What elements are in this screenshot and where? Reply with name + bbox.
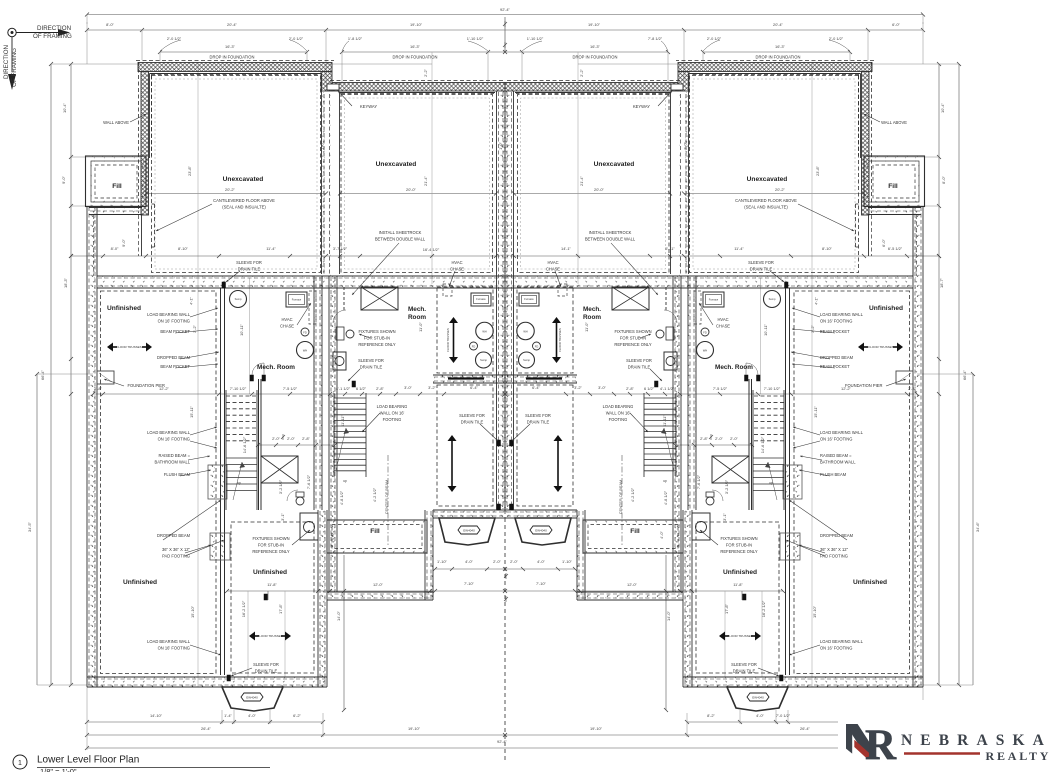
svg-text:DRAIN TILE: DRAIN TILE bbox=[461, 419, 484, 424]
svg-text:92'-4": 92'-4" bbox=[500, 7, 511, 12]
svg-text:Mech.: Mech. bbox=[583, 306, 601, 313]
svg-text:BEAM POCKET: BEAM POCKET bbox=[160, 329, 190, 334]
svg-text:ON 16' FOOTING: ON 16' FOOTING bbox=[820, 436, 852, 441]
svg-text:2'-0 1/2": 2'-0 1/2" bbox=[167, 36, 182, 41]
svg-text:FLOOR TRUSSES: FLOOR TRUSSES bbox=[727, 634, 752, 638]
svg-text:4'-8 1/2": 4'-8 1/2" bbox=[339, 490, 344, 505]
svg-text:1'-10": 1'-10" bbox=[562, 559, 573, 564]
svg-text:EW4040: EW4040 bbox=[535, 528, 547, 532]
svg-text:12'-0": 12'-0" bbox=[373, 582, 384, 587]
svg-text:KEYWAY: KEYWAY bbox=[633, 104, 650, 109]
svg-text:SLEEVE FOR: SLEEVE FOR bbox=[459, 413, 485, 418]
svg-text:26'-4": 26'-4" bbox=[201, 726, 212, 731]
svg-text:Mech. Room: Mech. Room bbox=[715, 364, 753, 371]
svg-text:Fill: Fill bbox=[112, 183, 122, 190]
svg-text:2'-0": 2'-0" bbox=[272, 436, 280, 441]
svg-text:1/8" = 1'-0": 1/8" = 1'-0" bbox=[40, 767, 77, 772]
svg-text:BETWEEN DOUBLE WALL: BETWEEN DOUBLE WALL bbox=[585, 236, 636, 241]
svg-text:12'-0": 12'-0" bbox=[627, 582, 638, 587]
svg-text:CHASE: CHASE bbox=[546, 266, 560, 271]
svg-text:16'-3": 16'-3" bbox=[225, 44, 236, 49]
svg-text:FD: FD bbox=[535, 345, 539, 349]
svg-text:Unexcavated: Unexcavated bbox=[594, 161, 635, 168]
svg-text:Fill: Fill bbox=[630, 528, 640, 535]
svg-text:FIXTURES SHOWN: FIXTURES SHOWN bbox=[252, 536, 289, 541]
svg-text:Unexcavated: Unexcavated bbox=[747, 176, 788, 183]
svg-text:1'-8 1/2": 1'-8 1/2" bbox=[348, 36, 363, 41]
svg-text:2'-0 1/2": 2'-0 1/2" bbox=[707, 36, 722, 41]
svg-text:4'-1 1/2": 4'-1 1/2" bbox=[660, 386, 675, 391]
svg-text:1'-4": 1'-4" bbox=[224, 713, 232, 718]
svg-text:14'-0": 14'-0" bbox=[666, 610, 671, 621]
svg-text:HVAC: HVAC bbox=[547, 260, 558, 265]
svg-text:7'-10": 7'-10" bbox=[536, 581, 547, 586]
svg-text:16'-3": 16'-3" bbox=[775, 44, 786, 49]
svg-text:1'-10 1/2": 1'-10 1/2" bbox=[527, 36, 544, 41]
svg-text:26'-4": 26'-4" bbox=[800, 726, 811, 731]
svg-text:FD: FD bbox=[472, 345, 476, 349]
svg-text:21'-4": 21'-4" bbox=[579, 175, 584, 186]
svg-text:WALL ABOVE: WALL ABOVE bbox=[881, 120, 907, 125]
svg-text:BEAM POCKET: BEAM POCKET bbox=[160, 364, 190, 369]
svg-text:DRAIN TILE: DRAIN TILE bbox=[733, 668, 756, 673]
svg-text:17'-8": 17'-8" bbox=[724, 603, 729, 614]
svg-text:11'-8": 11'-8" bbox=[733, 582, 743, 587]
svg-text:2'-2": 2'-2" bbox=[579, 69, 584, 77]
svg-text:WH: WH bbox=[482, 330, 486, 334]
svg-text:3'-0": 3'-0" bbox=[598, 385, 606, 390]
svg-text:DRAIN TILE: DRAIN TILE bbox=[238, 266, 261, 271]
svg-text:12'-2": 12'-2" bbox=[159, 386, 170, 391]
svg-text:up: up bbox=[769, 481, 773, 485]
svg-text:2'-0": 2'-0" bbox=[287, 436, 295, 441]
svg-text:PAD FOOTING: PAD FOOTING bbox=[162, 553, 190, 558]
svg-text:3'-2": 3'-2" bbox=[192, 325, 197, 333]
svg-text:4'-0": 4'-0" bbox=[248, 713, 256, 718]
svg-text:OF FRAMING: OF FRAMING bbox=[11, 48, 18, 87]
svg-text:DRAIN TILE: DRAIN TILE bbox=[628, 364, 651, 369]
svg-text:3'-2": 3'-2" bbox=[810, 325, 815, 333]
svg-text:LOAD BEARING WALL: LOAD BEARING WALL bbox=[147, 430, 191, 435]
svg-text:14'-0": 14'-0" bbox=[336, 610, 341, 621]
svg-text:up: up bbox=[663, 479, 667, 483]
svg-text:10'-11": 10'-11" bbox=[763, 323, 768, 335]
svg-text:Sump: Sump bbox=[523, 358, 530, 362]
svg-text:20'-4": 20'-4" bbox=[227, 22, 238, 27]
svg-text:FLUSH BEAM: FLUSH BEAM bbox=[820, 472, 847, 477]
svg-text:14'-10": 14'-10" bbox=[150, 713, 163, 718]
svg-text:FD: FD bbox=[303, 331, 307, 335]
svg-text:LOAD BEARING: LOAD BEARING bbox=[603, 404, 634, 409]
svg-text:RAISED BEAM =: RAISED BEAM = bbox=[820, 453, 852, 458]
svg-text:20'-0": 20'-0" bbox=[594, 187, 605, 192]
svg-text:2'-8": 2'-8" bbox=[908, 386, 916, 391]
svg-text:11'-0": 11'-0" bbox=[584, 322, 589, 332]
svg-text:FIXTURES SHOWN: FIXTURES SHOWN bbox=[614, 329, 651, 334]
svg-text:4'-0": 4'-0" bbox=[756, 713, 764, 718]
svg-text:CHASE: CHASE bbox=[716, 323, 730, 328]
svg-text:23'-8": 23'-8" bbox=[815, 165, 820, 176]
svg-text:6 1/2": 6 1/2" bbox=[644, 386, 655, 391]
svg-text:LOAD BEARING: LOAD BEARING bbox=[377, 404, 408, 409]
svg-text:16'-4 1/2": 16'-4 1/2" bbox=[423, 247, 440, 252]
svg-text:11'-0": 11'-0" bbox=[418, 322, 423, 332]
svg-text:7'-10": 7'-10" bbox=[464, 581, 475, 586]
svg-text:16'-3": 16'-3" bbox=[590, 44, 601, 49]
svg-text:2'-8": 2'-8" bbox=[700, 436, 708, 441]
svg-text:8'-2": 8'-2" bbox=[707, 713, 715, 718]
svg-text:RAISED BEAM =: RAISED BEAM = bbox=[158, 453, 190, 458]
svg-text:4'-2 1/2": 4'-2 1/2" bbox=[630, 487, 635, 502]
svg-text:4'-0": 4'-0" bbox=[659, 531, 664, 539]
svg-text:2'-2": 2'-2" bbox=[423, 69, 428, 77]
svg-text:FLOOR TRUSSES: FLOOR TRUSSES bbox=[116, 345, 141, 349]
svg-text:REFERENCE ONLY: REFERENCE ONLY bbox=[358, 342, 395, 347]
svg-text:9'-0": 9'-0" bbox=[121, 239, 126, 247]
svg-text:EW4040: EW4040 bbox=[246, 695, 258, 699]
svg-text:7'-10 1/2": 7'-10 1/2" bbox=[230, 386, 247, 391]
svg-text:4'-1": 4'-1" bbox=[189, 297, 194, 305]
svg-text:23'-8": 23'-8" bbox=[187, 165, 192, 176]
svg-text:11'-11": 11'-11" bbox=[340, 415, 345, 427]
svg-text:15'-11": 15'-11" bbox=[189, 405, 194, 417]
svg-text:6'-0": 6'-0" bbox=[881, 239, 886, 247]
svg-text:EW4040: EW4040 bbox=[463, 528, 475, 532]
svg-text:NEBRASKA: NEBRASKA bbox=[901, 732, 1052, 749]
svg-text:(SEAL AND INSUALTE): (SEAL AND INSUALTE) bbox=[744, 204, 788, 209]
svg-text:10'-4": 10'-4" bbox=[62, 102, 67, 113]
svg-text:Unfinished: Unfinished bbox=[853, 579, 887, 586]
svg-text:FOR STUB-IN: FOR STUB-IN bbox=[258, 542, 284, 547]
svg-text:16'-3": 16'-3" bbox=[410, 44, 421, 49]
svg-text:LOAD BEARING WALL: LOAD BEARING WALL bbox=[820, 639, 864, 644]
svg-text:ON 16' FOOTING: ON 16' FOOTING bbox=[158, 436, 190, 441]
svg-text:1'-0": 1'-0" bbox=[498, 142, 503, 150]
svg-text:2'-8": 2'-8" bbox=[302, 436, 310, 441]
svg-text:18'-7": 18'-7" bbox=[939, 277, 944, 288]
svg-text:FLUSH BEAM: FLUSH BEAM bbox=[164, 472, 191, 477]
svg-text:7'-5 1/2": 7'-5 1/2" bbox=[713, 386, 728, 391]
svg-text:LOAD BEARING WALL: LOAD BEARING WALL bbox=[820, 430, 864, 435]
svg-text:CHASE: CHASE bbox=[450, 266, 464, 271]
svg-text:FLOOR TRUSSES: FLOOR TRUSSES bbox=[257, 634, 282, 638]
svg-text:INSTALL SHEETROCK: INSTALL SHEETROCK bbox=[589, 230, 632, 235]
svg-text:CENTER OF BEAM: CENTER OF BEAM bbox=[384, 480, 389, 515]
svg-text:Sump: Sump bbox=[235, 297, 242, 301]
svg-text:FLOOR TRUSSES: FLOOR TRUSSES bbox=[558, 328, 562, 352]
svg-text:8'-10": 8'-10" bbox=[822, 246, 833, 251]
svg-text:WH: WH bbox=[703, 349, 707, 353]
svg-text:OF FRAMING: OF FRAMING bbox=[33, 33, 72, 40]
svg-text:WALL ON 16': WALL ON 16' bbox=[380, 410, 405, 415]
svg-text:PAD FOOTING: PAD FOOTING bbox=[820, 553, 848, 558]
svg-text:20'-2": 20'-2" bbox=[225, 187, 236, 192]
svg-text:SLEEVE FOR: SLEEVE FOR bbox=[525, 413, 551, 418]
svg-text:FOOTING: FOOTING bbox=[609, 417, 628, 422]
svg-text:4'-0": 4'-0" bbox=[537, 559, 545, 564]
svg-text:ON 16' FOOTING: ON 16' FOOTING bbox=[820, 318, 852, 323]
svg-text:SLEEVE FOR: SLEEVE FOR bbox=[731, 662, 757, 667]
svg-text:7'-0 1/2": 7'-0 1/2" bbox=[776, 713, 791, 718]
svg-text:CANTILEVERED FLOOR ABOVE: CANTILEVERED FLOOR ABOVE bbox=[213, 198, 275, 203]
svg-text:SLEEVE FOR: SLEEVE FOR bbox=[236, 260, 262, 265]
svg-text:1'-0": 1'-0" bbox=[683, 142, 688, 150]
svg-text:2'-0": 2'-0" bbox=[493, 559, 501, 564]
svg-text:BATHROOM WALL: BATHROOM WALL bbox=[820, 459, 856, 464]
svg-text:FOR STUB-IN: FOR STUB-IN bbox=[726, 542, 752, 547]
svg-text:DIRECTION: DIRECTION bbox=[3, 45, 10, 79]
svg-text:2'-0 1/2": 2'-0 1/2" bbox=[289, 36, 304, 41]
svg-text:DROPPED BEAM: DROPPED BEAM bbox=[820, 533, 854, 538]
svg-text:1: 1 bbox=[18, 760, 22, 767]
svg-text:3'-1": 3'-1" bbox=[722, 513, 727, 521]
svg-text:LOAD BEARING WALL: LOAD BEARING WALL bbox=[147, 639, 191, 644]
svg-text:CHASE: CHASE bbox=[280, 323, 294, 328]
svg-text:8'-0": 8'-0" bbox=[106, 22, 114, 27]
svg-text:SLEEVE FOR: SLEEVE FOR bbox=[253, 662, 279, 667]
svg-text:14'-6 1/2": 14'-6 1/2" bbox=[760, 436, 765, 453]
svg-text:3'-2": 3'-2" bbox=[574, 385, 582, 390]
svg-text:DRAIN TILE: DRAIN TILE bbox=[750, 266, 773, 271]
svg-text:SLEEVE FOR: SLEEVE FOR bbox=[358, 358, 384, 363]
svg-text:4'-0": 4'-0" bbox=[330, 532, 335, 540]
svg-text:(SEAL AND INSUALTE): (SEAL AND INSUALTE) bbox=[222, 204, 266, 209]
svg-text:REFERENCE ONLY: REFERENCE ONLY bbox=[252, 549, 289, 554]
svg-text:1'-10": 1'-10" bbox=[437, 559, 448, 564]
svg-text:Sump: Sump bbox=[769, 297, 776, 301]
svg-text:15'-10": 15'-10" bbox=[190, 605, 195, 618]
svg-text:14'-1": 14'-1" bbox=[561, 246, 572, 251]
svg-text:15'-10": 15'-10" bbox=[812, 605, 817, 618]
svg-text:KEYWAY: KEYWAY bbox=[360, 104, 377, 109]
svg-text:8'-0": 8'-0" bbox=[941, 176, 946, 184]
svg-text:Furnace: Furnace bbox=[709, 298, 719, 302]
svg-text:FOOTING: FOOTING bbox=[383, 417, 402, 422]
svg-text:DROPPED BEAM: DROPPED BEAM bbox=[820, 355, 854, 360]
svg-text:Furnace: Furnace bbox=[524, 297, 534, 301]
svg-text:7'-6 1/2": 7'-6 1/2" bbox=[306, 474, 311, 489]
svg-text:WH: WH bbox=[303, 349, 307, 353]
svg-text:7'-10 1/2": 7'-10 1/2" bbox=[764, 386, 781, 391]
svg-text:6'-5 1/2": 6'-5 1/2" bbox=[888, 246, 903, 251]
svg-text:36" X 36" X 12": 36" X 36" X 12" bbox=[820, 547, 849, 552]
svg-text:4'-1": 4'-1" bbox=[814, 297, 819, 305]
svg-text:Unexcavated: Unexcavated bbox=[376, 161, 417, 168]
svg-text:8'-10": 8'-10" bbox=[178, 246, 189, 251]
svg-text:15'-11": 15'-11" bbox=[813, 405, 818, 417]
svg-text:DRAIN TILE: DRAIN TILE bbox=[360, 364, 383, 369]
svg-text:10'-11": 10'-11" bbox=[239, 323, 244, 335]
svg-text:20'-0": 20'-0" bbox=[406, 187, 417, 192]
svg-text:Unfinished: Unfinished bbox=[253, 569, 287, 576]
svg-text:6'-4": 6'-4" bbox=[532, 385, 540, 390]
svg-text:WALL ABOVE: WALL ABOVE bbox=[103, 120, 129, 125]
svg-text:2'-8": 2'-8" bbox=[94, 386, 102, 391]
svg-text:16'-2 1/2": 16'-2 1/2" bbox=[241, 600, 246, 617]
svg-text:14'-6 1/2": 14'-6 1/2" bbox=[242, 436, 247, 453]
svg-text:SLEEVE FOR: SLEEVE FOR bbox=[748, 260, 774, 265]
svg-text:19'-10": 19'-10" bbox=[590, 726, 603, 731]
svg-text:Room: Room bbox=[583, 314, 601, 321]
svg-text:3'-2 1/2": 3'-2 1/2" bbox=[724, 479, 729, 494]
svg-text:66'-4": 66'-4" bbox=[962, 369, 967, 380]
svg-text:36" X 36" X 12": 36" X 36" X 12" bbox=[162, 547, 191, 552]
svg-text:34'-5": 34'-5" bbox=[27, 521, 32, 532]
svg-text:LOAD BEARING WALL: LOAD BEARING WALL bbox=[820, 312, 864, 317]
svg-text:ON 16' FOOTING: ON 16' FOOTING bbox=[820, 645, 852, 650]
svg-text:up: up bbox=[343, 479, 347, 483]
svg-text:1'-10 1/2": 1'-10 1/2" bbox=[467, 36, 484, 41]
svg-text:BEAM POCKET: BEAM POCKET bbox=[820, 329, 850, 334]
svg-text:7'-8 1/2": 7'-8 1/2" bbox=[648, 36, 663, 41]
svg-text:21'-4": 21'-4" bbox=[423, 175, 428, 186]
svg-text:CENTER OF BEAM: CENTER OF BEAM bbox=[618, 480, 623, 515]
svg-text:2'-0": 2'-0" bbox=[730, 436, 738, 441]
svg-text:11'-4": 11'-4" bbox=[734, 246, 744, 251]
svg-text:DROPPED BEAM: DROPPED BEAM bbox=[157, 355, 191, 360]
svg-text:11'-8": 11'-8" bbox=[267, 582, 277, 587]
svg-text:R: R bbox=[865, 722, 897, 769]
svg-text:WH: WH bbox=[523, 330, 527, 334]
svg-text:19'-10": 19'-10" bbox=[410, 22, 423, 27]
svg-text:1'-0": 1'-0" bbox=[320, 142, 325, 150]
svg-text:4'-8 1/2": 4'-8 1/2" bbox=[663, 490, 668, 505]
svg-text:HVAC: HVAC bbox=[451, 260, 462, 265]
svg-text:Unfinished: Unfinished bbox=[107, 305, 141, 312]
svg-text:DROP IN FOUNDATION: DROP IN FOUNDATION bbox=[210, 55, 255, 60]
svg-text:FD: FD bbox=[703, 331, 707, 335]
svg-text:6 1/2": 6 1/2" bbox=[356, 386, 367, 391]
svg-text:7'-5 1/2": 7'-5 1/2" bbox=[283, 386, 298, 391]
svg-text:19'-10": 19'-10" bbox=[588, 22, 601, 27]
svg-text:DROP IN FOUNDATION: DROP IN FOUNDATION bbox=[573, 55, 618, 60]
svg-text:34'-6": 34'-6" bbox=[975, 521, 980, 532]
svg-text:SLEEVE FOR: SLEEVE FOR bbox=[626, 358, 652, 363]
svg-text:HVAC: HVAC bbox=[281, 317, 292, 322]
svg-text:3'-1": 3'-1" bbox=[280, 513, 285, 521]
svg-text:LOAD BEARING WALL: LOAD BEARING WALL bbox=[147, 312, 191, 317]
svg-text:2'-0": 2'-0" bbox=[715, 436, 723, 441]
svg-text:WALL ON 16': WALL ON 16' bbox=[606, 410, 631, 415]
svg-text:2'-8": 2'-8" bbox=[376, 386, 384, 391]
svg-text:BETWEEN DOUBLE WALL: BETWEEN DOUBLE WALL bbox=[375, 236, 426, 241]
svg-text:FOR STUB-IN: FOR STUB-IN bbox=[364, 335, 390, 340]
svg-text:Room: Room bbox=[408, 314, 426, 321]
svg-text:Fill: Fill bbox=[888, 183, 898, 190]
svg-text:4'-1 1/2": 4'-1 1/2" bbox=[336, 386, 351, 391]
svg-text:16'-2 1/2": 16'-2 1/2" bbox=[761, 600, 766, 617]
svg-text:ON 16' FOOTING: ON 16' FOOTING bbox=[158, 318, 190, 323]
svg-text:REALTY: REALTY bbox=[986, 749, 1052, 763]
svg-text:2'-0 1/2": 2'-0 1/2" bbox=[829, 36, 844, 41]
svg-text:66'-4": 66'-4" bbox=[40, 369, 45, 380]
svg-text:FOR STUB-IN: FOR STUB-IN bbox=[620, 335, 646, 340]
svg-text:8'-0": 8'-0" bbox=[111, 246, 119, 251]
svg-text:Unfinished: Unfinished bbox=[123, 579, 157, 586]
svg-text:3'-0": 3'-0" bbox=[404, 385, 412, 390]
svg-text:EW4040: EW4040 bbox=[752, 695, 764, 699]
svg-text:4'-2 1/2": 4'-2 1/2" bbox=[372, 487, 377, 502]
svg-text:DROP IN FOUNDATION: DROP IN FOUNDATION bbox=[756, 55, 801, 60]
svg-text:4'-0": 4'-0" bbox=[465, 559, 473, 564]
svg-text:5'-11": 5'-11" bbox=[665, 246, 675, 251]
svg-text:6'-2": 6'-2" bbox=[293, 713, 301, 718]
svg-text:Fill: Fill bbox=[370, 528, 380, 535]
svg-text:HVAC: HVAC bbox=[717, 317, 728, 322]
svg-text:Furnace: Furnace bbox=[476, 297, 486, 301]
svg-text:92'-4": 92'-4" bbox=[497, 739, 508, 744]
svg-text:INSTALL SHEETROCK: INSTALL SHEETROCK bbox=[379, 230, 422, 235]
svg-text:DRAIN TILE: DRAIN TILE bbox=[255, 668, 278, 673]
svg-text:18'-3": 18'-3" bbox=[63, 277, 68, 288]
svg-text:ON 16' FOOTING: ON 16' FOOTING bbox=[158, 645, 190, 650]
svg-text:Unfinished: Unfinished bbox=[869, 305, 903, 312]
svg-text:DRAIN TILE: DRAIN TILE bbox=[527, 419, 550, 424]
svg-text:6'-0": 6'-0" bbox=[892, 22, 900, 27]
svg-text:DIRECTION: DIRECTION bbox=[37, 25, 71, 32]
svg-text:19'-10": 19'-10" bbox=[408, 726, 421, 731]
svg-text:BEAM POCKET: BEAM POCKET bbox=[820, 364, 850, 369]
svg-text:7'-6 1/2": 7'-6 1/2" bbox=[696, 474, 701, 489]
svg-text:REFERENCE ONLY: REFERENCE ONLY bbox=[614, 342, 651, 347]
svg-text:3'-2 1/2": 3'-2 1/2" bbox=[278, 479, 283, 494]
svg-text:Mech.: Mech. bbox=[408, 306, 426, 313]
svg-text:11'-4": 11'-4" bbox=[266, 246, 276, 251]
svg-text:9'-0": 9'-0" bbox=[61, 176, 66, 184]
svg-text:2'-8": 2'-8" bbox=[626, 386, 634, 391]
svg-text:Mech. Room: Mech. Room bbox=[257, 364, 295, 371]
svg-text:up: up bbox=[237, 481, 241, 485]
svg-text:3'-7 1/2": 3'-7 1/2" bbox=[333, 246, 348, 251]
svg-text:DROP IN FOUNDATION: DROP IN FOUNDATION bbox=[393, 55, 438, 60]
svg-text:Furnace: Furnace bbox=[292, 298, 302, 302]
svg-text:Lower Level Floor Plan: Lower Level Floor Plan bbox=[37, 755, 139, 766]
svg-text:11'-11": 11'-11" bbox=[662, 415, 667, 427]
svg-text:6'-4": 6'-4" bbox=[470, 385, 478, 390]
svg-text:CANTILEVERED FLOOR ABOVE: CANTILEVERED FLOOR ABOVE bbox=[735, 198, 797, 203]
svg-text:FLOOR TRUSSES: FLOOR TRUSSES bbox=[446, 328, 450, 352]
svg-text:20'-4": 20'-4" bbox=[773, 22, 784, 27]
svg-text:FIXTURES SHOWN: FIXTURES SHOWN bbox=[358, 329, 395, 334]
svg-text:BATHROOM WALL: BATHROOM WALL bbox=[155, 459, 191, 464]
svg-text:17'-8": 17'-8" bbox=[278, 603, 283, 614]
svg-text:Sump: Sump bbox=[480, 358, 487, 362]
svg-text:3'-2": 3'-2" bbox=[428, 385, 436, 390]
svg-text:12'-2": 12'-2" bbox=[841, 386, 852, 391]
svg-text:FIXTURES SHOWN: FIXTURES SHOWN bbox=[720, 536, 757, 541]
svg-text:REFERENCE ONLY: REFERENCE ONLY bbox=[720, 549, 757, 554]
svg-text:10'-4": 10'-4" bbox=[940, 102, 945, 113]
svg-text:Unfinished: Unfinished bbox=[723, 569, 757, 576]
svg-text:FLOOR TRUSSES: FLOOR TRUSSES bbox=[868, 345, 893, 349]
svg-text:DROPPED BEAM: DROPPED BEAM bbox=[157, 533, 191, 538]
svg-text:Unexcavated: Unexcavated bbox=[223, 176, 264, 183]
svg-text:2'-0": 2'-0" bbox=[510, 559, 518, 564]
svg-text:20'-2": 20'-2" bbox=[775, 187, 786, 192]
